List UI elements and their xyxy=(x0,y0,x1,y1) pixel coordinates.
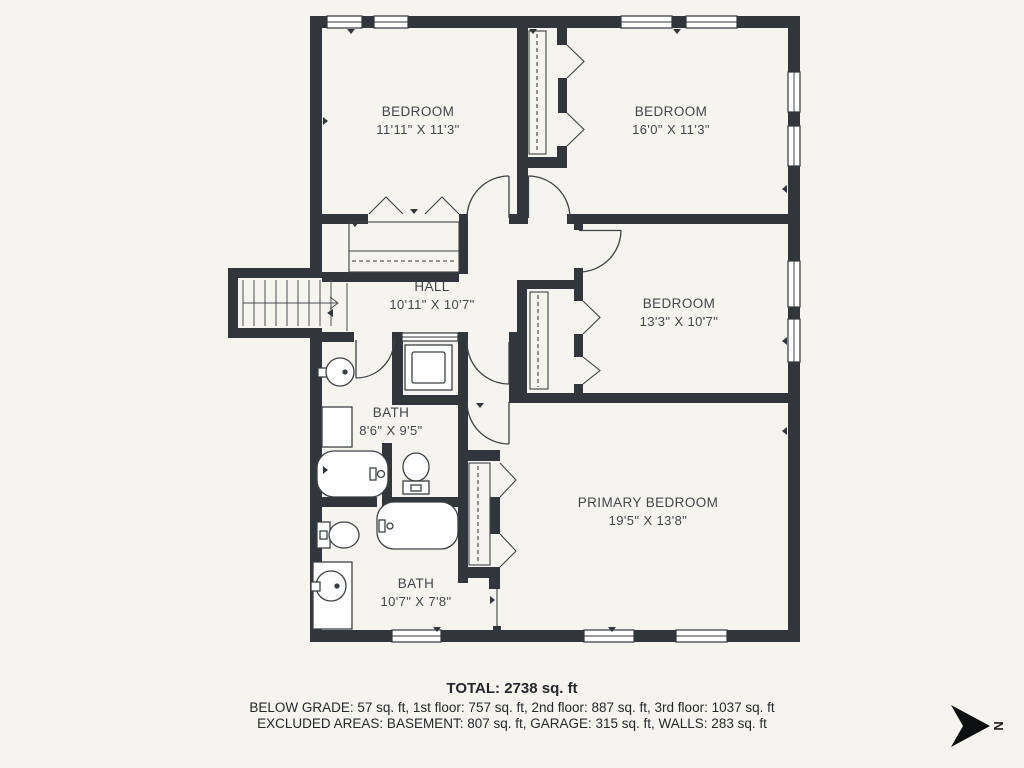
bathtub-bath-1 xyxy=(317,451,388,497)
room-name: BEDROOM xyxy=(338,103,498,121)
room-name: BEDROOM xyxy=(599,295,759,313)
below-grade-text: BELOW GRADE: 57 sq. ft, 1st floor: 757 s… xyxy=(0,700,1024,715)
room-label-bath-2: BATH 10'7" X 7'8" xyxy=(356,575,476,611)
room-label-hall: HALL 10'11" X 10'7" xyxy=(352,278,512,314)
toilet-bath-2 xyxy=(317,522,359,548)
door-bedroom-2 xyxy=(528,176,570,218)
total-area-text: TOTAL: 2738 sq. ft xyxy=(0,681,1024,696)
room-dimensions: 10'11" X 10'7" xyxy=(352,296,512,314)
sink-bath-1 xyxy=(318,358,354,386)
room-label-bedroom-3: BEDROOM 13'3" X 10'7" xyxy=(599,295,759,331)
door-bedroom-3 xyxy=(579,230,621,272)
room-dimensions: 19'5" X 13'8" xyxy=(538,512,758,530)
room-name: BEDROOM xyxy=(591,103,751,121)
staircase xyxy=(243,280,347,331)
shower xyxy=(405,345,452,390)
door-primary-bedroom xyxy=(467,402,509,444)
sink-bath-2 xyxy=(311,562,352,629)
room-dimensions: 8'6" X 9'5" xyxy=(331,422,451,440)
floor-plan: N BEDROOM 11'11" X 11'3" BEDROOM 16'0" X… xyxy=(0,0,1024,768)
stair-direction-arrow xyxy=(243,297,338,309)
room-dimensions: 16'0" X 11'3" xyxy=(591,121,751,139)
excluded-areas-text: EXCLUDED AREAS: BASEMENT: 807 sq. ft, GA… xyxy=(0,716,1024,731)
room-label-bedroom-2: BEDROOM 16'0" X 11'3" xyxy=(591,103,751,139)
room-name: HALL xyxy=(352,278,512,296)
floor-plan-drawing: N xyxy=(0,0,1024,768)
toilet-bath-1 xyxy=(403,453,429,494)
door-bath-1 xyxy=(356,340,394,378)
room-label-bedroom-1: BEDROOM 11'11" X 11'3" xyxy=(338,103,498,139)
room-label-bath-1: BATH 8'6" X 9'5" xyxy=(331,404,451,440)
bathtub-bath-2 xyxy=(377,502,458,549)
room-name: BATH xyxy=(356,575,476,593)
door-bedroom-1 xyxy=(467,176,509,218)
area-summary: TOTAL: 2738 sq. ft BELOW GRADE: 57 sq. f… xyxy=(0,681,1024,731)
room-dimensions: 10'7" X 7'8" xyxy=(356,593,476,611)
room-name: BATH xyxy=(331,404,451,422)
room-dimensions: 11'11" X 11'3" xyxy=(338,121,498,139)
room-label-primary-bedroom: PRIMARY BEDROOM 19'5" X 13'8" xyxy=(538,494,758,530)
door-hall-vestibule xyxy=(467,342,509,384)
room-name: PRIMARY BEDROOM xyxy=(538,494,758,512)
room-dimensions: 13'3" X 10'7" xyxy=(599,313,759,331)
